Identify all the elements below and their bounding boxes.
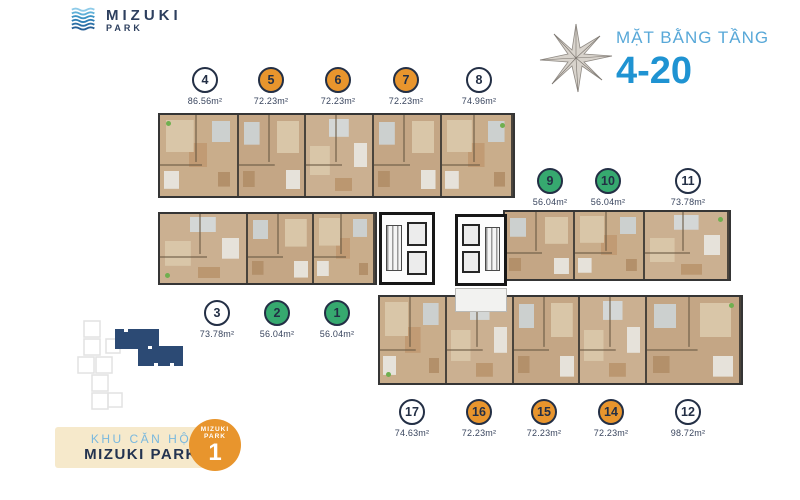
plant-icon — [500, 123, 505, 128]
unit-area-label: 56.04m² — [305, 329, 369, 339]
left-wing-plan — [158, 212, 377, 285]
unit-5-plan — [239, 115, 306, 196]
unit-number-badge: 12 — [675, 399, 701, 425]
unit-number-badge: 4 — [192, 67, 218, 93]
unit-marker-14[interactable]: 14 72.23m² — [579, 399, 643, 438]
elevator-shaft — [462, 224, 480, 246]
badge-title: MIZUKI PARK — [84, 446, 198, 463]
mizuki-park-logo: MIZUKI PARK — [70, 6, 182, 34]
floorplan-page: MIZUKI PARK MẶT BẰNG TẦNG 4-20 — [0, 0, 800, 500]
unit-number-badge: 10 — [595, 168, 621, 194]
unit-2-plan — [248, 214, 314, 283]
unit-6-plan — [306, 115, 374, 196]
unit-area-label: 72.23m² — [447, 428, 511, 438]
unit-marker-17[interactable]: 17 74.63m² — [380, 399, 444, 438]
plant-icon — [386, 372, 391, 377]
unit-17-plan — [380, 297, 447, 383]
unit-number-badge: 6 — [325, 67, 351, 93]
unit-marker-10[interactable]: 10 56.04m² — [576, 168, 640, 207]
unit-area-label: 56.04m² — [576, 197, 640, 207]
unit-marker-2[interactable]: 2 56.04m² — [245, 300, 309, 339]
unit-number-badge: 2 — [264, 300, 290, 326]
elevator-core-left — [379, 212, 435, 285]
unit-number-badge: 14 — [598, 399, 624, 425]
unit-number-badge: 5 — [258, 67, 284, 93]
logo-title: MIZUKI — [106, 8, 182, 23]
elevator-shaft — [407, 222, 427, 246]
unit-area-label: 56.04m² — [245, 329, 309, 339]
unit-3-plan — [160, 214, 248, 283]
waves-logo-icon — [70, 6, 100, 34]
unit-11-plan — [645, 212, 729, 279]
unit-number-badge: 7 — [393, 67, 419, 93]
unit-number-badge: 15 — [531, 399, 557, 425]
elevator-core-right — [455, 214, 507, 286]
page-title: MẶT BẰNG TẦNG — [616, 28, 769, 48]
unit-marker-5[interactable]: 5 72.23m² — [239, 67, 303, 106]
tower-1-badge: MIZUKI PARK 1 — [189, 419, 241, 471]
tower-badge-line1: MIZUKI — [201, 426, 229, 433]
tower-badge-number: 1 — [208, 441, 221, 465]
unit-marker-11[interactable]: 11 73.78m² — [656, 168, 720, 207]
unit-area-label: 72.23m² — [374, 96, 438, 106]
floor-range: 4-20 — [616, 50, 769, 92]
unit-area-label: 74.63m² — [380, 428, 444, 438]
unit-number-badge: 1 — [324, 300, 350, 326]
logo-subtitle: PARK — [106, 23, 182, 34]
unit-marker-12[interactable]: 12 98.72m² — [656, 399, 720, 438]
unit-area-label: 74.96m² — [447, 96, 511, 106]
bottom-wing-plan — [378, 295, 743, 385]
unit-area-label: 72.23m² — [512, 428, 576, 438]
elevator-shaft — [462, 251, 480, 273]
unit-number-badge: 16 — [466, 399, 492, 425]
unit-area-label: 56.04m² — [518, 197, 582, 207]
site-key-map — [58, 315, 198, 420]
staircase — [386, 225, 402, 271]
unit-marker-7[interactable]: 7 72.23m² — [374, 67, 438, 106]
badge-subtitle: KHU CĂN HỘ — [91, 432, 191, 446]
unit-area-label: 72.23m² — [239, 96, 303, 106]
unit-marker-6[interactable]: 6 72.23m² — [306, 67, 370, 106]
unit-number-badge: 11 — [675, 168, 701, 194]
unit-number-badge: 8 — [466, 67, 492, 93]
unit-area-label: 73.78m² — [656, 197, 720, 207]
unit-10-plan — [575, 212, 645, 279]
title-block: MẶT BẰNG TẦNG 4-20 — [616, 28, 769, 92]
plant-icon — [718, 217, 723, 222]
unit-marker-1[interactable]: 1 56.04m² — [305, 300, 369, 339]
unit-area-label: 72.23m² — [306, 96, 370, 106]
plant-icon — [165, 273, 170, 278]
unit-number-badge: 9 — [537, 168, 563, 194]
plant-icon — [729, 303, 734, 308]
unit-9-plan — [505, 212, 575, 279]
unit-number-badge: 17 — [399, 399, 425, 425]
unit-marker-9[interactable]: 9 56.04m² — [518, 168, 582, 207]
unit-1-plan — [314, 214, 375, 283]
unit-area-label: 86.56m² — [173, 96, 237, 106]
unit-number-badge: 3 — [204, 300, 230, 326]
core-annex — [455, 288, 507, 312]
unit-15-plan — [514, 297, 580, 383]
unit-4-plan — [160, 115, 239, 196]
unit-marker-8[interactable]: 8 74.96m² — [447, 67, 511, 106]
unit-12-plan — [647, 297, 741, 383]
right-wing-plan — [503, 210, 731, 281]
unit-area-label: 98.72m² — [656, 428, 720, 438]
unit-marker-15[interactable]: 15 72.23m² — [512, 399, 576, 438]
unit-marker-4[interactable]: 4 86.56m² — [173, 67, 237, 106]
top-wing-plan — [158, 113, 515, 198]
unit-area-label: 72.23m² — [579, 428, 643, 438]
unit-marker-16[interactable]: 16 72.23m² — [447, 399, 511, 438]
compass-rose-icon — [538, 22, 614, 94]
plant-icon — [166, 121, 171, 126]
unit-7-plan — [374, 115, 442, 196]
elevator-shaft — [407, 251, 427, 275]
unit-14-plan — [580, 297, 647, 383]
staircase — [485, 227, 500, 271]
